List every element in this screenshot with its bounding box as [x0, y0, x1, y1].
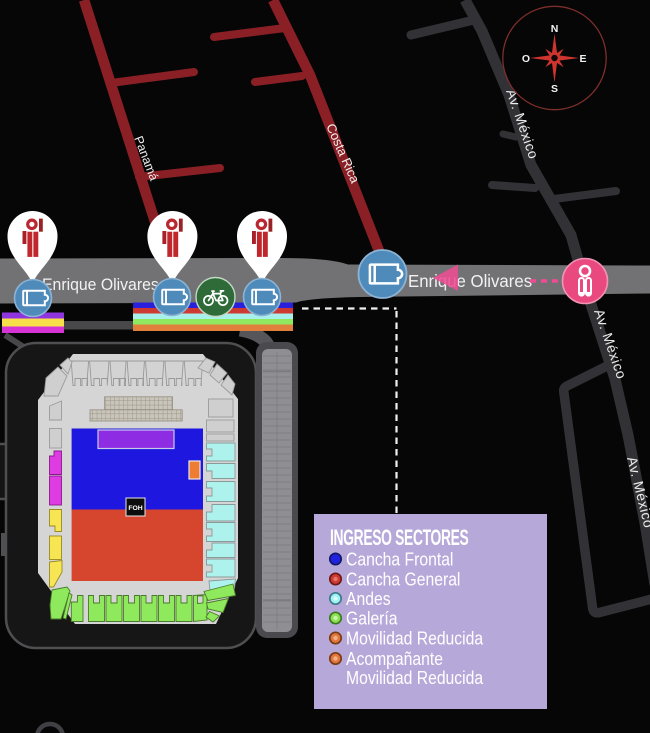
svg-text:Andes: Andes — [346, 588, 391, 610]
svg-text:FOH: FOH — [128, 505, 142, 512]
svg-text:O: O — [522, 53, 530, 65]
svg-text:Enrique Olivares: Enrique Olivares — [42, 276, 159, 295]
svg-text:N: N — [551, 23, 559, 35]
svg-text:S: S — [551, 83, 558, 95]
svg-text:E: E — [579, 53, 586, 65]
svg-text:Cancha Frontal: Cancha Frontal — [346, 548, 453, 570]
svg-text:Movilidad Reducida: Movilidad Reducida — [346, 627, 484, 649]
svg-text:Enrique Olivares: Enrique Olivares — [408, 271, 532, 291]
svg-text:INGRESO SECTORES: INGRESO SECTORES — [330, 525, 468, 550]
svg-text:Cancha General: Cancha General — [346, 568, 460, 590]
svg-text:Galería: Galería — [346, 607, 398, 629]
svg-text:Movilidad Reducida: Movilidad Reducida — [346, 667, 484, 689]
